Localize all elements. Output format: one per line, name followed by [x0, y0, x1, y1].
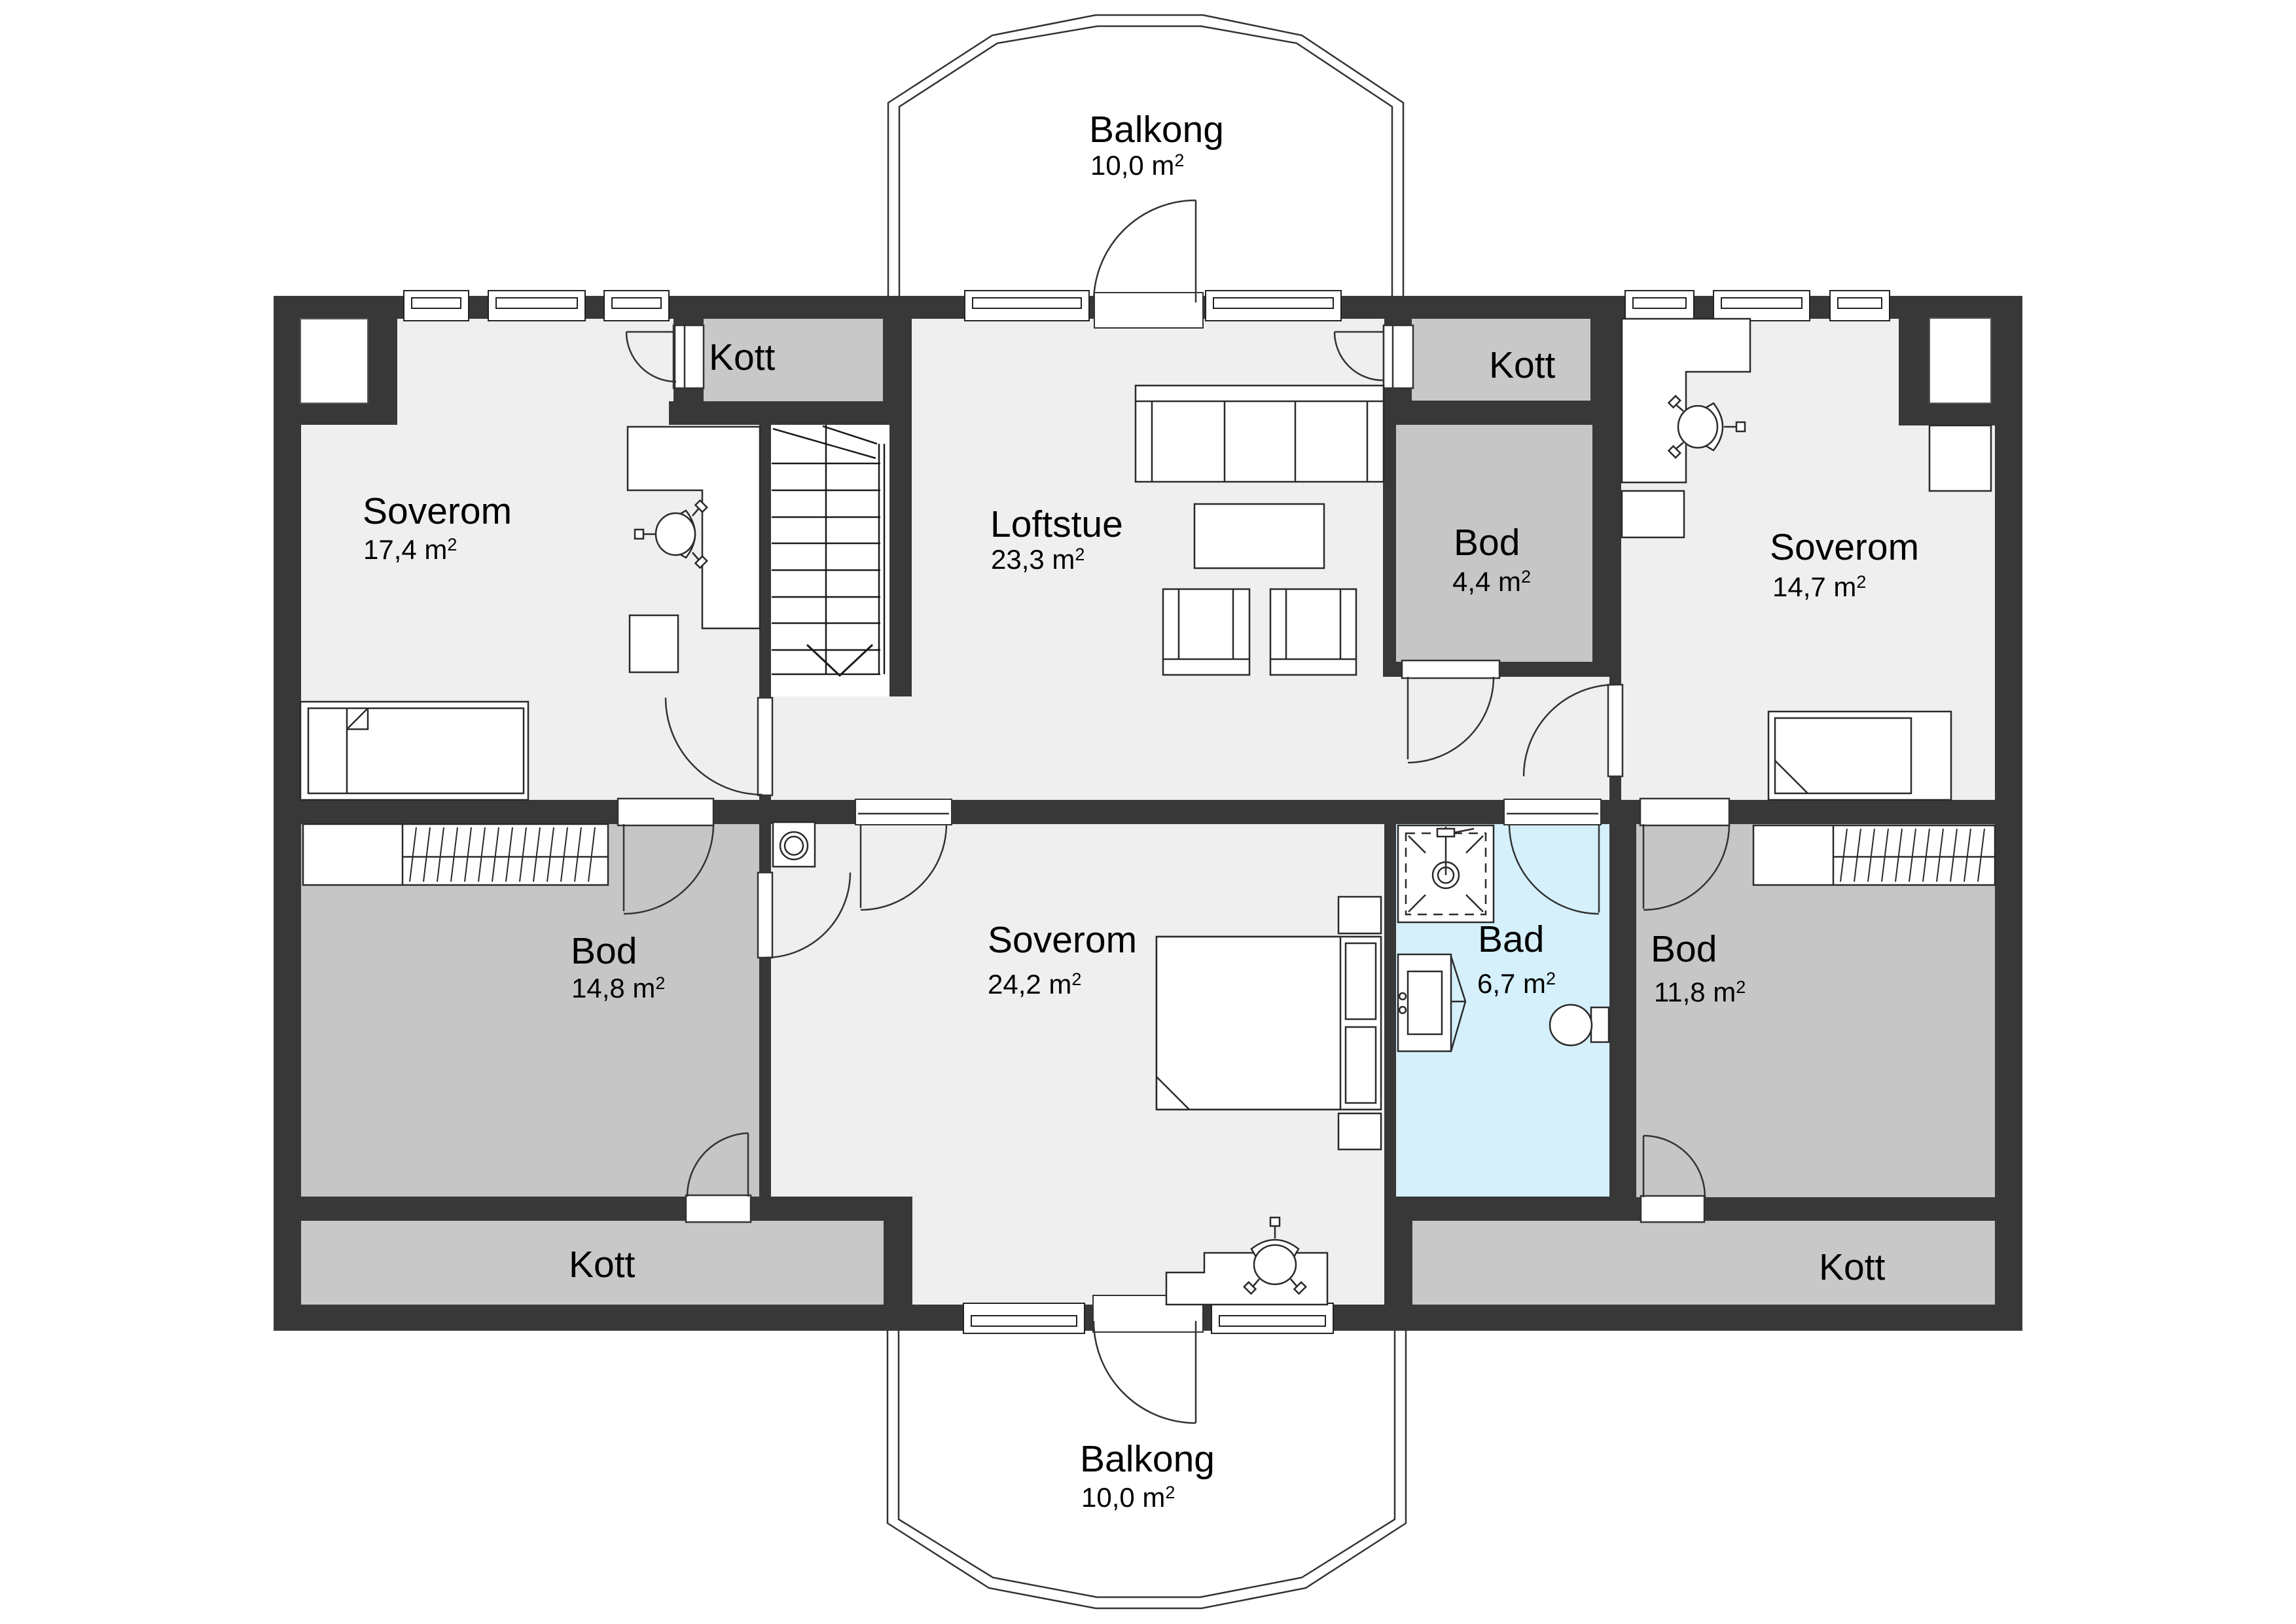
svg-text:Kott: Kott	[709, 336, 776, 378]
svg-text:Kott: Kott	[569, 1244, 636, 1286]
svg-text:Bod: Bod	[1651, 928, 1717, 970]
svg-text:Soverom: Soverom	[363, 490, 512, 532]
svg-text:4,4 m2: 4,4 m2	[1452, 566, 1531, 597]
svg-text:10,0 m2: 10,0 m2	[1081, 1482, 1175, 1513]
svg-text:Kott: Kott	[1819, 1246, 1886, 1288]
svg-text:14,7 m2: 14,7 m2	[1772, 571, 1866, 602]
svg-text:10,0 m2: 10,0 m2	[1090, 150, 1184, 181]
svg-text:Kott: Kott	[1489, 344, 1556, 386]
svg-text:Balkong: Balkong	[1080, 1438, 1215, 1480]
svg-text:24,2 m2: 24,2 m2	[988, 969, 1081, 1000]
svg-text:Soverom: Soverom	[988, 919, 1137, 961]
svg-text:Bod: Bod	[1454, 522, 1520, 564]
svg-text:17,4 m2: 17,4 m2	[363, 534, 457, 565]
svg-text:11,8 m2: 11,8 m2	[1654, 977, 1746, 1007]
svg-text:Loftstue: Loftstue	[990, 503, 1123, 545]
svg-text:6,7 m2: 6,7 m2	[1477, 968, 1556, 999]
svg-text:Bad: Bad	[1478, 918, 1544, 960]
svg-text:Bod: Bod	[571, 930, 637, 972]
svg-text:Balkong: Balkong	[1089, 109, 1224, 151]
svg-text:23,3 m2: 23,3 m2	[991, 544, 1085, 575]
svg-text:Soverom: Soverom	[1770, 526, 1919, 568]
svg-text:14,8 m2: 14,8 m2	[571, 973, 665, 1003]
